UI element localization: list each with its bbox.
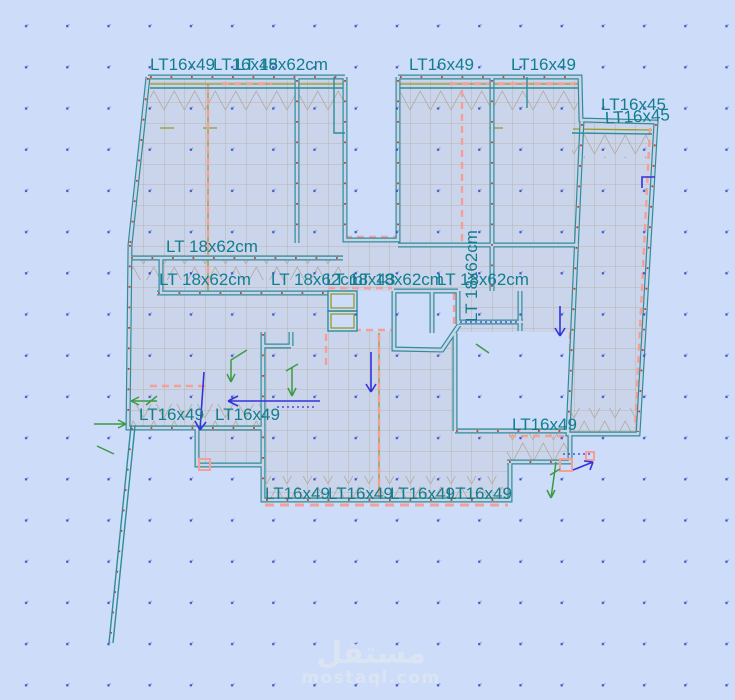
- beam-label: LT 18x62cm: [166, 237, 258, 257]
- beam-label: LT16x49: [447, 484, 512, 504]
- beam-label: LT16x45: [605, 105, 671, 128]
- beam-label: LT 18x62cm: [159, 270, 251, 290]
- beam-label: LT 18x62cm: [437, 270, 529, 290]
- model-canvas[interactable]: LT16x49 LT16x45 LT 18x62cm LT16x49 LT16x…: [0, 0, 735, 700]
- beam-label: LT 18x62cm: [352, 270, 444, 290]
- watermark-domain: mostaql.com: [300, 668, 442, 688]
- beam-label: LT16x49: [512, 415, 577, 435]
- beam-label: LT16x49: [390, 484, 455, 504]
- beam-label: LT16x49: [409, 55, 474, 75]
- beam-label: LT16x49: [150, 55, 215, 75]
- beam-label: LT16x49: [215, 405, 280, 425]
- watermark-name: مستقل: [306, 638, 436, 670]
- beam-label: LT16x49: [511, 55, 576, 75]
- beam-label-vertical: LT 18x62cm: [462, 230, 482, 322]
- beam-label: LT16x49: [265, 484, 330, 504]
- beam-label: LT 18x62cm: [236, 55, 328, 75]
- beam-label: LT16x49: [139, 405, 204, 425]
- beam-label: LT16x49: [328, 484, 393, 504]
